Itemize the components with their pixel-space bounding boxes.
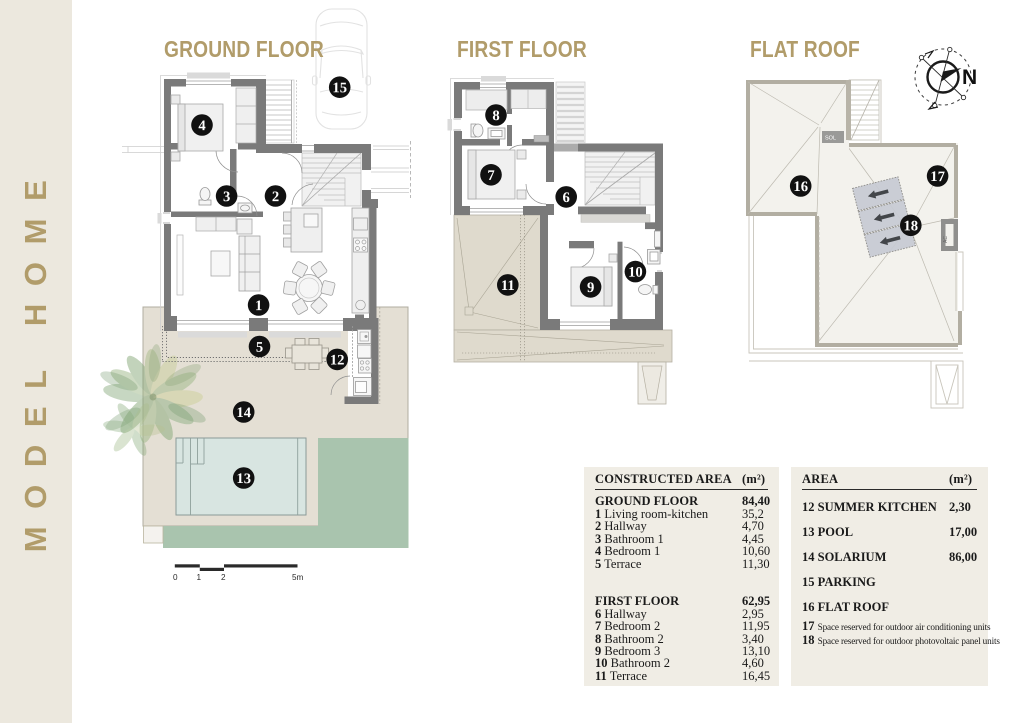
svg-text:16: 16 (793, 179, 808, 195)
svg-text:1: 1 (255, 298, 262, 314)
svg-text:2: 2 (272, 189, 279, 205)
svg-text:18: 18 (903, 218, 918, 234)
svg-text:1: 1 (197, 573, 202, 582)
svg-text:3: 3 (223, 189, 230, 205)
svg-text:SOL: SOL (825, 136, 836, 142)
svg-text:15: 15 (332, 80, 347, 96)
svg-text:N: N (962, 66, 977, 89)
svg-text:0: 0 (173, 573, 178, 582)
svg-text:4: 4 (198, 118, 206, 134)
svg-text:5m: 5m (292, 573, 304, 582)
svg-text:5: 5 (256, 340, 263, 356)
svg-text:9: 9 (587, 280, 594, 296)
svg-text:2: 2 (221, 573, 226, 582)
svg-text:10: 10 (628, 265, 643, 281)
svg-text:8: 8 (492, 108, 499, 124)
svg-text:12: 12 (330, 352, 345, 368)
svg-text:7: 7 (487, 168, 494, 184)
svg-text:AC: AC (943, 236, 949, 243)
svg-text:14: 14 (236, 405, 251, 421)
svg-text:17: 17 (930, 169, 945, 185)
svg-text:11: 11 (501, 278, 515, 294)
svg-text:6: 6 (563, 190, 570, 206)
svg-text:13: 13 (236, 471, 251, 487)
